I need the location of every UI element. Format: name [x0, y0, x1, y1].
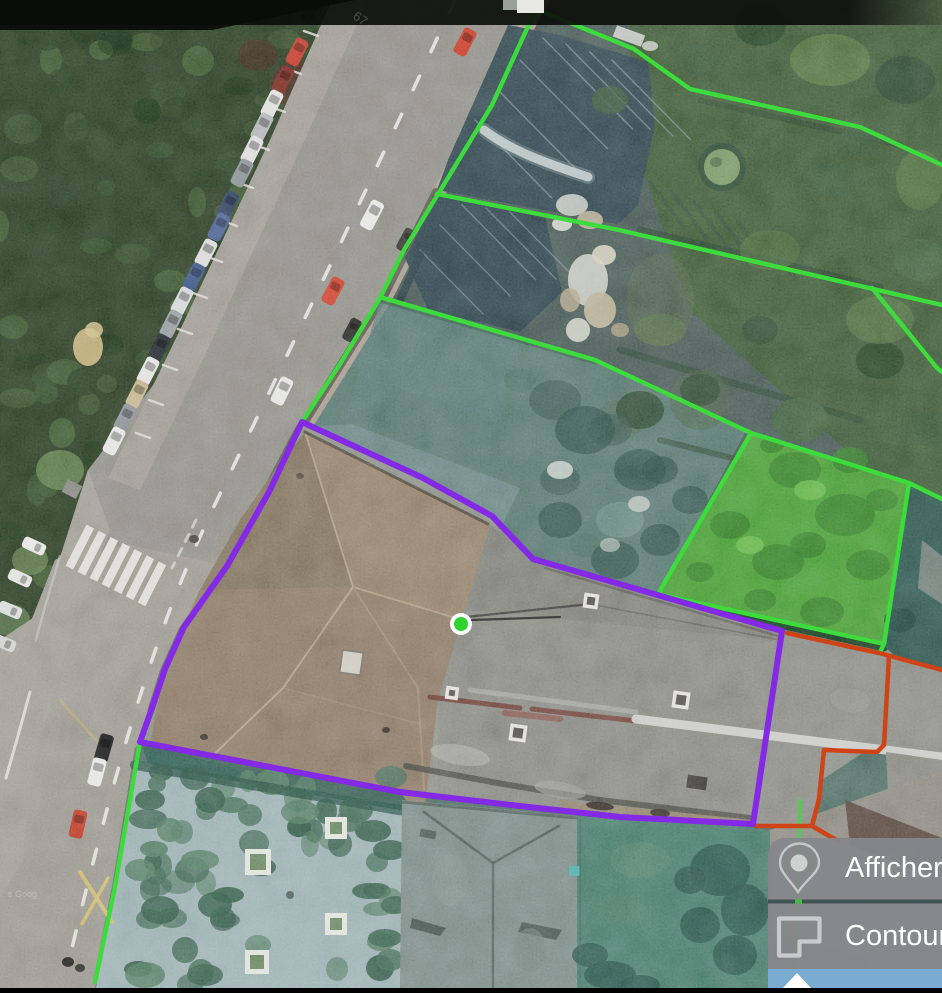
- svg-text:Afficher: Afficher: [845, 852, 942, 884]
- svg-text:Contour: Contour: [845, 920, 942, 952]
